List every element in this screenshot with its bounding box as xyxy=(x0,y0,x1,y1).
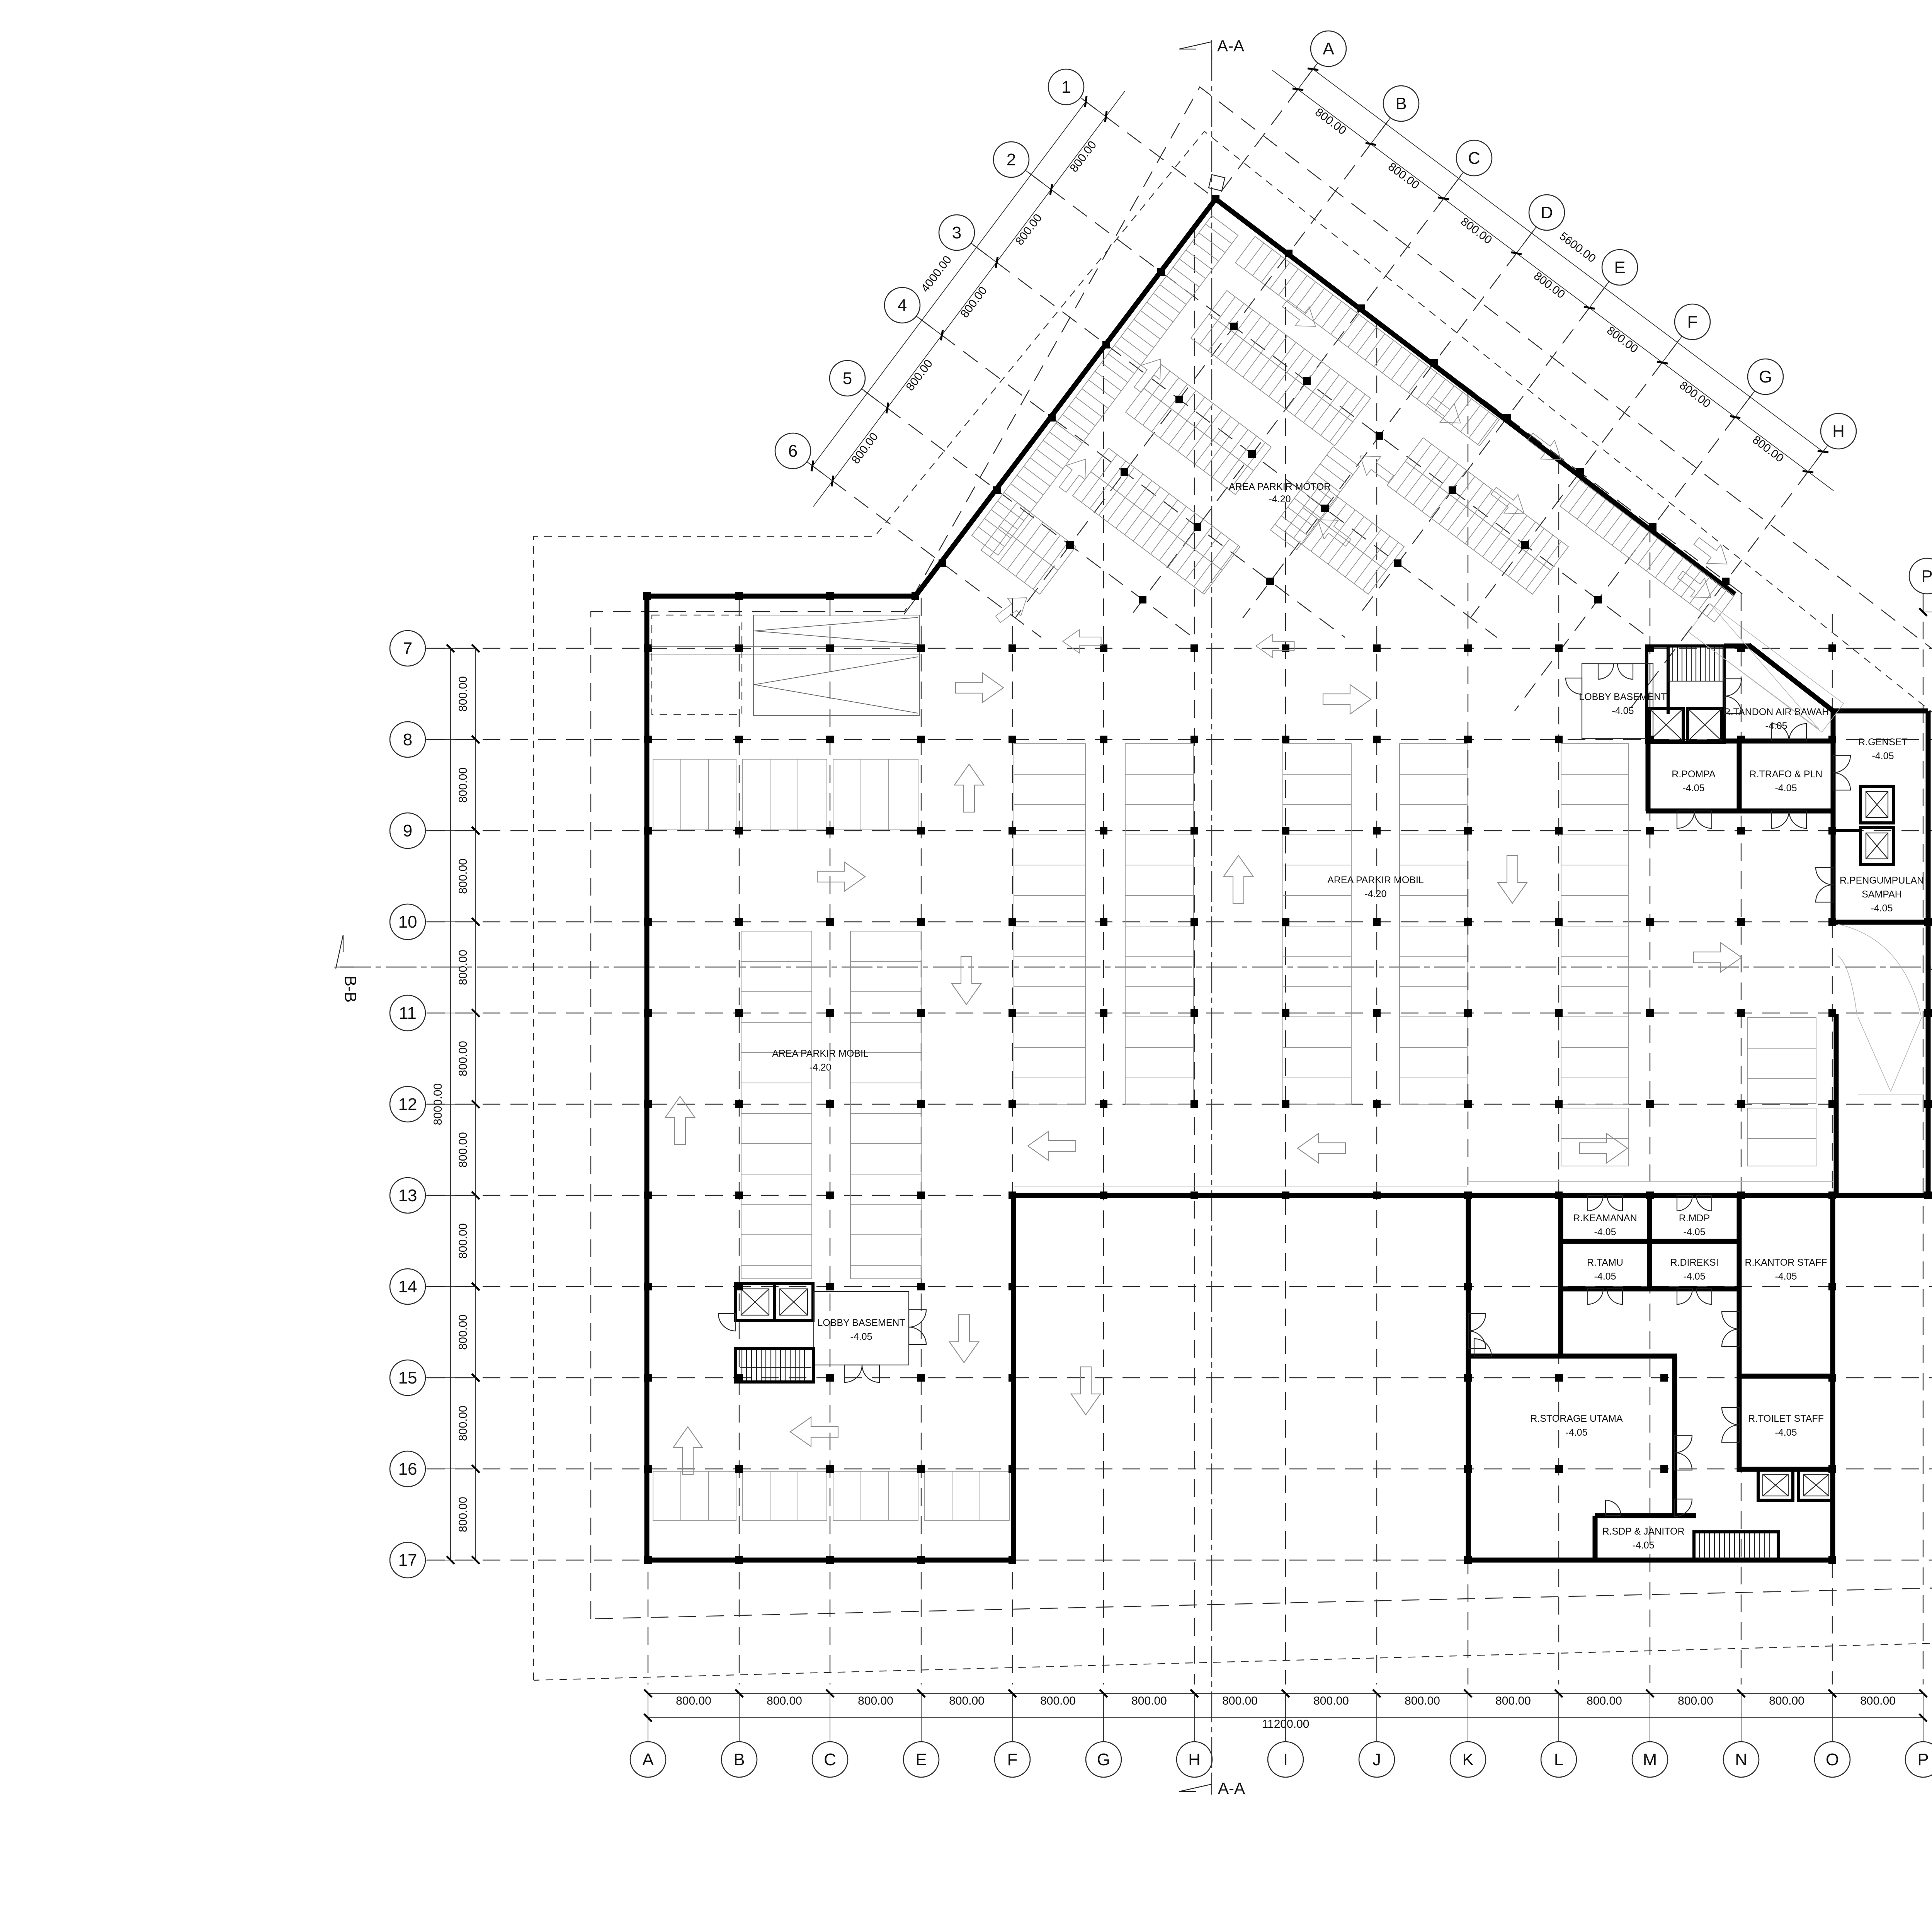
svg-text:800.00: 800.00 xyxy=(457,1223,469,1259)
svg-text:F: F xyxy=(1007,1750,1018,1769)
svg-text:800.00: 800.00 xyxy=(457,1314,469,1350)
svg-text:H: H xyxy=(1832,422,1845,441)
svg-text:R.STORAGE UTAMA: R.STORAGE UTAMA xyxy=(1530,1413,1623,1424)
svg-text:800.00: 800.00 xyxy=(949,1695,985,1707)
svg-text:800.00: 800.00 xyxy=(1405,1695,1440,1707)
svg-text:R.TRAFO & PLN: R.TRAFO & PLN xyxy=(1750,769,1823,780)
svg-text:800.00: 800.00 xyxy=(457,1041,469,1076)
svg-text:B: B xyxy=(1395,94,1406,113)
svg-text:800.00: 800.00 xyxy=(1587,1695,1622,1707)
svg-text:9: 9 xyxy=(403,821,412,840)
svg-text:LOBBY BASEMENT: LOBBY BASEMENT xyxy=(1579,692,1667,702)
svg-text:14: 14 xyxy=(398,1277,417,1296)
svg-text:1: 1 xyxy=(1061,78,1071,97)
svg-text:-4.05: -4.05 xyxy=(1612,705,1634,716)
svg-text:-4.05: -4.05 xyxy=(1775,1427,1797,1438)
svg-text:6: 6 xyxy=(788,442,798,461)
svg-text:12: 12 xyxy=(398,1095,417,1114)
svg-text:R.DIREKSI: R.DIREKSI xyxy=(1670,1257,1718,1268)
svg-text:800.00: 800.00 xyxy=(457,1132,469,1168)
svg-text:13: 13 xyxy=(398,1186,417,1205)
svg-text:-4.05: -4.05 xyxy=(1683,783,1705,794)
svg-text:D: D xyxy=(1541,203,1553,222)
svg-text:K: K xyxy=(1462,1750,1473,1769)
svg-text:-4.05: -4.05 xyxy=(1566,1427,1588,1438)
svg-text:16: 16 xyxy=(398,1460,417,1479)
svg-text:AREA PARKIR MOBIL: AREA PARKIR MOBIL xyxy=(1327,875,1424,886)
svg-text:-4.20: -4.20 xyxy=(1365,889,1387,899)
svg-text:F: F xyxy=(1687,313,1698,331)
svg-text:I: I xyxy=(1283,1750,1288,1769)
svg-text:-4.20: -4.20 xyxy=(810,1062,832,1073)
svg-text:R.KANTOR STAFF: R.KANTOR STAFF xyxy=(1745,1257,1827,1268)
svg-text:800.00: 800.00 xyxy=(1131,1695,1167,1707)
svg-text:-4.05: -4.05 xyxy=(1775,783,1797,794)
svg-text:8: 8 xyxy=(403,730,412,749)
svg-text:4: 4 xyxy=(898,296,907,315)
svg-text:-4.20: -4.20 xyxy=(1269,494,1291,505)
svg-text:L: L xyxy=(1554,1750,1563,1769)
svg-text:N: N xyxy=(1735,1750,1747,1769)
svg-text:800.00: 800.00 xyxy=(457,767,469,803)
svg-text:P: P xyxy=(1917,1750,1929,1769)
svg-text:B: B xyxy=(733,1750,745,1769)
svg-text:R.POMPA: R.POMPA xyxy=(1672,769,1716,780)
svg-text:-4.05: -4.05 xyxy=(1684,1227,1706,1237)
svg-text:C: C xyxy=(824,1750,836,1769)
svg-text:5: 5 xyxy=(843,369,852,388)
svg-text:R.KEAMANAN: R.KEAMANAN xyxy=(1573,1213,1637,1224)
svg-text:A: A xyxy=(642,1750,654,1769)
svg-text:800.00: 800.00 xyxy=(1040,1695,1076,1707)
svg-text:2: 2 xyxy=(1007,150,1016,169)
svg-text:B-B: B-B xyxy=(342,976,360,1003)
svg-text:R.TANDON AIR BAWAH: R.TANDON AIR BAWAH xyxy=(1724,707,1829,717)
svg-text:800.00: 800.00 xyxy=(858,1695,893,1707)
svg-text:M: M xyxy=(1643,1750,1657,1769)
svg-text:A: A xyxy=(1323,39,1334,58)
svg-text:SAMPAH: SAMPAH xyxy=(1862,889,1902,900)
svg-text:800.00: 800.00 xyxy=(457,1497,469,1532)
svg-text:-4.05: -4.05 xyxy=(850,1331,872,1342)
svg-text:800.00: 800.00 xyxy=(457,1406,469,1441)
svg-text:J: J xyxy=(1372,1750,1381,1769)
svg-text:800.00: 800.00 xyxy=(1313,1695,1349,1707)
svg-text:R.TAMU: R.TAMU xyxy=(1587,1257,1623,1268)
svg-text:O: O xyxy=(1826,1750,1839,1769)
svg-text:R.MDP: R.MDP xyxy=(1679,1213,1710,1224)
svg-text:LOBBY BASEMENT: LOBBY BASEMENT xyxy=(817,1317,905,1328)
svg-text:10: 10 xyxy=(398,913,417,931)
svg-text:800.00: 800.00 xyxy=(1860,1695,1896,1707)
svg-text:AREA PARKIR MOBIL: AREA PARKIR MOBIL xyxy=(772,1048,869,1059)
svg-text:R.SDP & JANITOR: R.SDP & JANITOR xyxy=(1602,1526,1684,1537)
svg-text:11: 11 xyxy=(399,1004,417,1023)
svg-text:-4.05: -4.05 xyxy=(1775,1271,1797,1282)
svg-text:A-A: A-A xyxy=(1218,1779,1245,1797)
svg-text:E: E xyxy=(1614,258,1625,277)
svg-text:-4.05: -4.05 xyxy=(1594,1271,1616,1282)
svg-text:800.00: 800.00 xyxy=(457,676,469,712)
svg-text:-4.05: -4.05 xyxy=(1765,721,1787,731)
svg-text:800.00: 800.00 xyxy=(457,950,469,985)
svg-text:800.00: 800.00 xyxy=(457,858,469,894)
svg-text:15: 15 xyxy=(398,1368,417,1387)
svg-text:7: 7 xyxy=(403,639,412,658)
svg-text:17: 17 xyxy=(398,1551,417,1570)
svg-text:R.GENSET: R.GENSET xyxy=(1858,737,1908,748)
svg-text:800.00: 800.00 xyxy=(676,1695,711,1707)
svg-text:800.00: 800.00 xyxy=(767,1695,802,1707)
svg-text:R.TOILET STAFF: R.TOILET STAFF xyxy=(1748,1413,1824,1424)
svg-text:G: G xyxy=(1097,1750,1110,1769)
svg-text:A-A: A-A xyxy=(1217,37,1244,55)
svg-text:800.00: 800.00 xyxy=(1678,1695,1713,1707)
svg-text:R.PENGUMPULAN: R.PENGUMPULAN xyxy=(1840,875,1924,886)
svg-text:G: G xyxy=(1759,367,1772,386)
svg-text:800.00: 800.00 xyxy=(1495,1695,1531,1707)
svg-text:-4.05: -4.05 xyxy=(1594,1227,1616,1237)
svg-text:3: 3 xyxy=(952,223,961,242)
svg-text:AREA PARKIR MOTOR: AREA PARKIR MOTOR xyxy=(1229,481,1331,492)
svg-text:-4.05: -4.05 xyxy=(1871,903,1893,914)
svg-text:P: P xyxy=(1921,567,1932,586)
svg-text:-4.05: -4.05 xyxy=(1872,751,1894,761)
svg-text:800.00: 800.00 xyxy=(1222,1695,1258,1707)
svg-text:800.00: 800.00 xyxy=(1769,1695,1804,1707)
svg-text:-4.05: -4.05 xyxy=(1684,1271,1706,1282)
svg-text:E: E xyxy=(915,1750,927,1769)
svg-text:-4.05: -4.05 xyxy=(1633,1540,1655,1551)
svg-text:H: H xyxy=(1188,1750,1201,1769)
svg-text:C: C xyxy=(1468,149,1480,168)
